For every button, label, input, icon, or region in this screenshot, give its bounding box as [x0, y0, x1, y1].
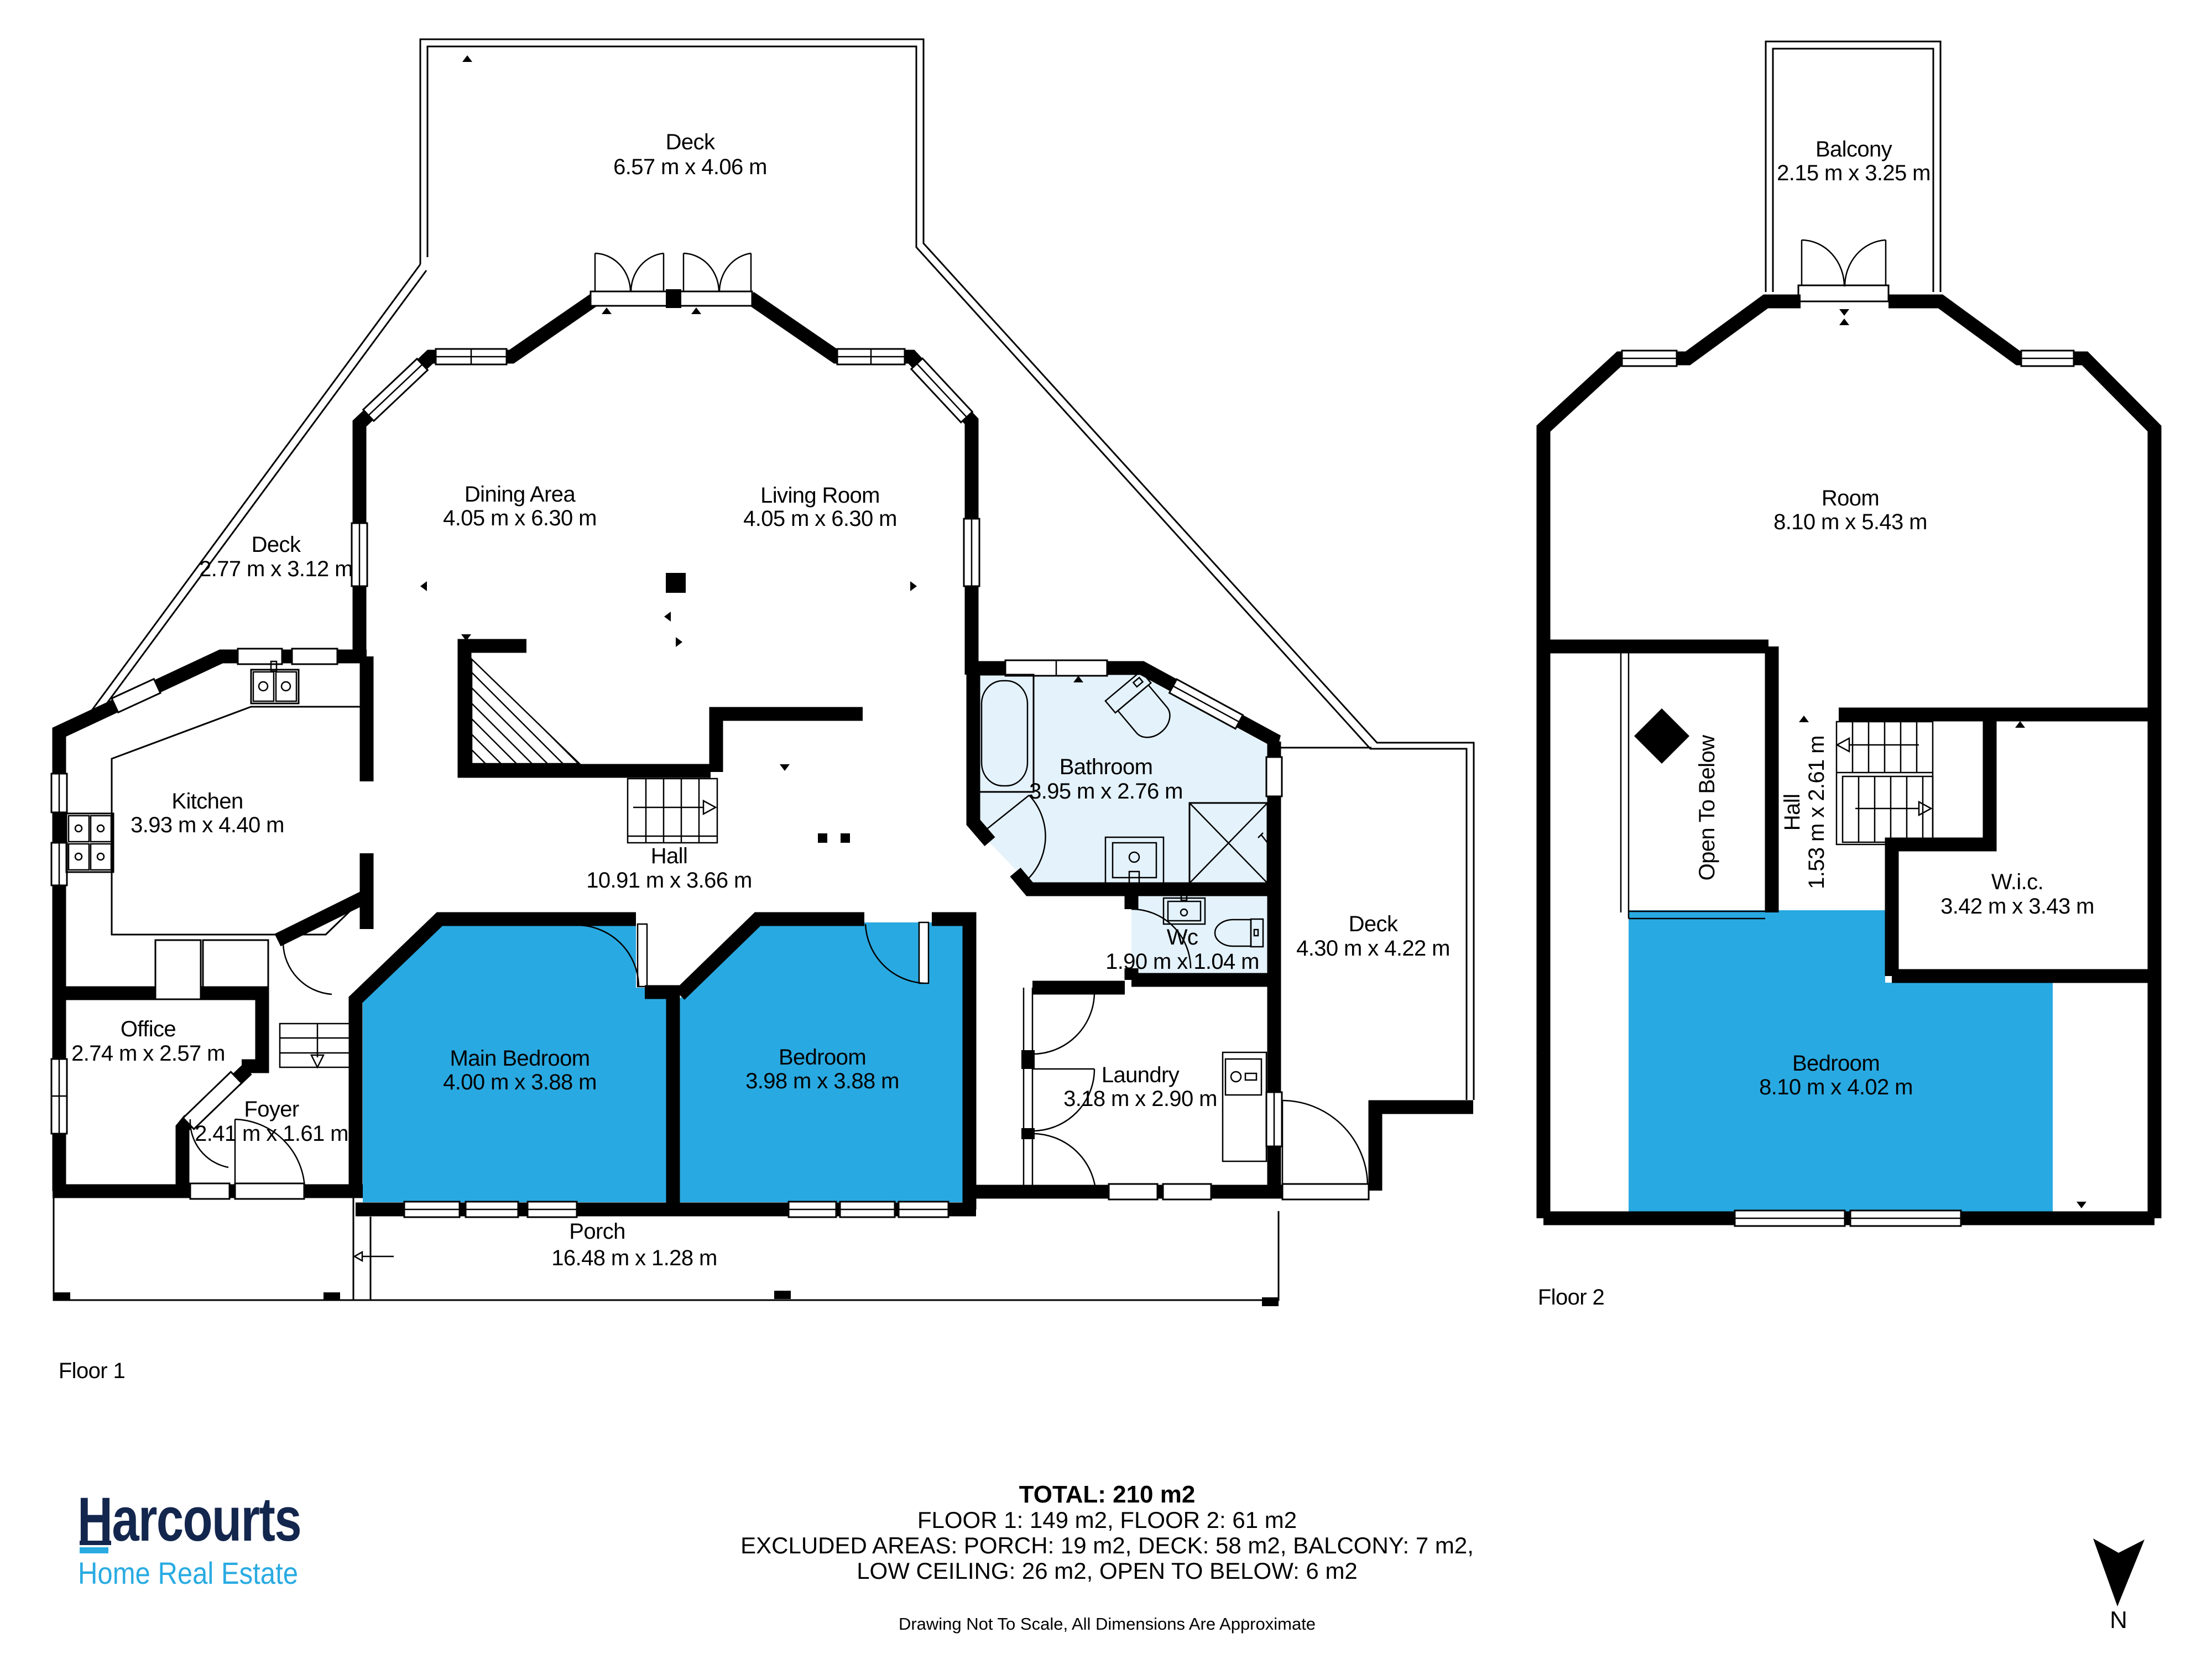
svg-text:8.10 m x 4.02 m: 8.10 m x 4.02 m	[1759, 1075, 1913, 1099]
svg-text:Hall: Hall	[651, 844, 688, 868]
svg-text:Kitchen: Kitchen	[171, 789, 243, 813]
svg-text:Laundry: Laundry	[1102, 1063, 1180, 1087]
svg-text:Deck: Deck	[1349, 912, 1399, 936]
svg-text:Bedroom: Bedroom	[1792, 1051, 1880, 1076]
svg-text:4.05 m x 6.30 m: 4.05 m x 6.30 m	[743, 507, 897, 531]
svg-text:3.98 m x 3.88 m: 3.98 m x 3.88 m	[745, 1069, 899, 1093]
svg-text:4.30 m x 4.22 m: 4.30 m x 4.22 m	[1296, 936, 1450, 961]
svg-text:LOW CEILING: 26 m2, OPEN TO BE: LOW CEILING: 26 m2, OPEN TO BELOW: 6 m2	[857, 1558, 1358, 1584]
svg-text:1.53 m x 2.61 m: 1.53 m x 2.61 m	[1804, 735, 1829, 889]
svg-text:Deck: Deck	[252, 533, 301, 557]
svg-text:4.05 m x 6.30 m: 4.05 m x 6.30 m	[443, 506, 597, 530]
svg-text:EXCLUDED AREAS: PORCH: 19 m2,: EXCLUDED AREAS: PORCH: 19 m2, DECK: 58 m…	[740, 1532, 1474, 1558]
svg-text:2.15 m x 3.25 m: 2.15 m x 3.25 m	[1777, 161, 1931, 185]
svg-text:Bedroom: Bedroom	[779, 1045, 866, 1070]
svg-text:3.18 m x 2.90 m: 3.18 m x 2.90 m	[1063, 1087, 1217, 1111]
svg-text:6.57 m x 4.06 m: 6.57 m x 4.06 m	[613, 155, 767, 179]
svg-text:Living Room: Living Room	[760, 483, 880, 508]
svg-text:FLOOR 1: 149 m2, FLOOR 2: 61 m: FLOOR 1: 149 m2, FLOOR 2: 61 m2	[917, 1507, 1297, 1533]
svg-text:Hall: Hall	[1780, 794, 1804, 831]
svg-text:Floor 2: Floor 2	[1538, 1285, 1604, 1310]
svg-text:Wc: Wc	[1167, 925, 1198, 950]
svg-text:4.00 m x 3.88 m: 4.00 m x 3.88 m	[443, 1070, 597, 1094]
svg-text:N: N	[2110, 1606, 2127, 1634]
svg-text:8.10 m x 5.43 m: 8.10 m x 5.43 m	[1773, 510, 1927, 534]
svg-text:W.i.c.: W.i.c.	[1991, 870, 2043, 894]
svg-text:Main Bedroom: Main Bedroom	[450, 1046, 590, 1071]
svg-text:Bathroom: Bathroom	[1060, 755, 1153, 779]
svg-text:TOTAL: 210 m2: TOTAL: 210 m2	[1019, 1481, 1196, 1508]
svg-text:2.41 m x 1.61 m: 2.41 m x 1.61 m	[195, 1121, 348, 1146]
svg-text:Floor 1: Floor 1	[59, 1359, 125, 1383]
svg-text:Deck: Deck	[666, 130, 716, 154]
svg-text:2.77 m x 3.12 m: 2.77 m x 3.12 m	[199, 557, 353, 581]
svg-text:1.90 m x 1.04 m: 1.90 m x 1.04 m	[1105, 950, 1259, 974]
svg-text:10.91 m x 3.66 m: 10.91 m x 3.66 m	[586, 868, 752, 893]
svg-text:3.42 m x 3.43 m: 3.42 m x 3.43 m	[1940, 894, 2094, 919]
svg-text:2.74 m x 2.57 m: 2.74 m x 2.57 m	[71, 1041, 225, 1066]
svg-text:16.48 m x 1.28 m: 16.48 m x 1.28 m	[551, 1246, 717, 1270]
svg-text:Home Real Estate: Home Real Estate	[78, 1556, 298, 1590]
svg-text:Foyer: Foyer	[244, 1097, 299, 1121]
svg-text:3.93 m x 4.40 m: 3.93 m x 4.40 m	[131, 813, 284, 837]
svg-text:3.95 m x 2.76 m: 3.95 m x 2.76 m	[1029, 779, 1183, 804]
svg-text:Office: Office	[121, 1017, 176, 1041]
svg-text:Drawing Not To Scale, All Dime: Drawing Not To Scale, All Dimensions Are…	[899, 1614, 1316, 1634]
svg-text:Room: Room	[1822, 486, 1879, 510]
svg-text:Balcony: Balcony	[1815, 137, 1892, 161]
svg-text:Porch: Porch	[569, 1219, 625, 1244]
svg-text:Open To Below: Open To Below	[1695, 735, 1719, 880]
svg-text:Dining Area: Dining Area	[465, 482, 576, 507]
